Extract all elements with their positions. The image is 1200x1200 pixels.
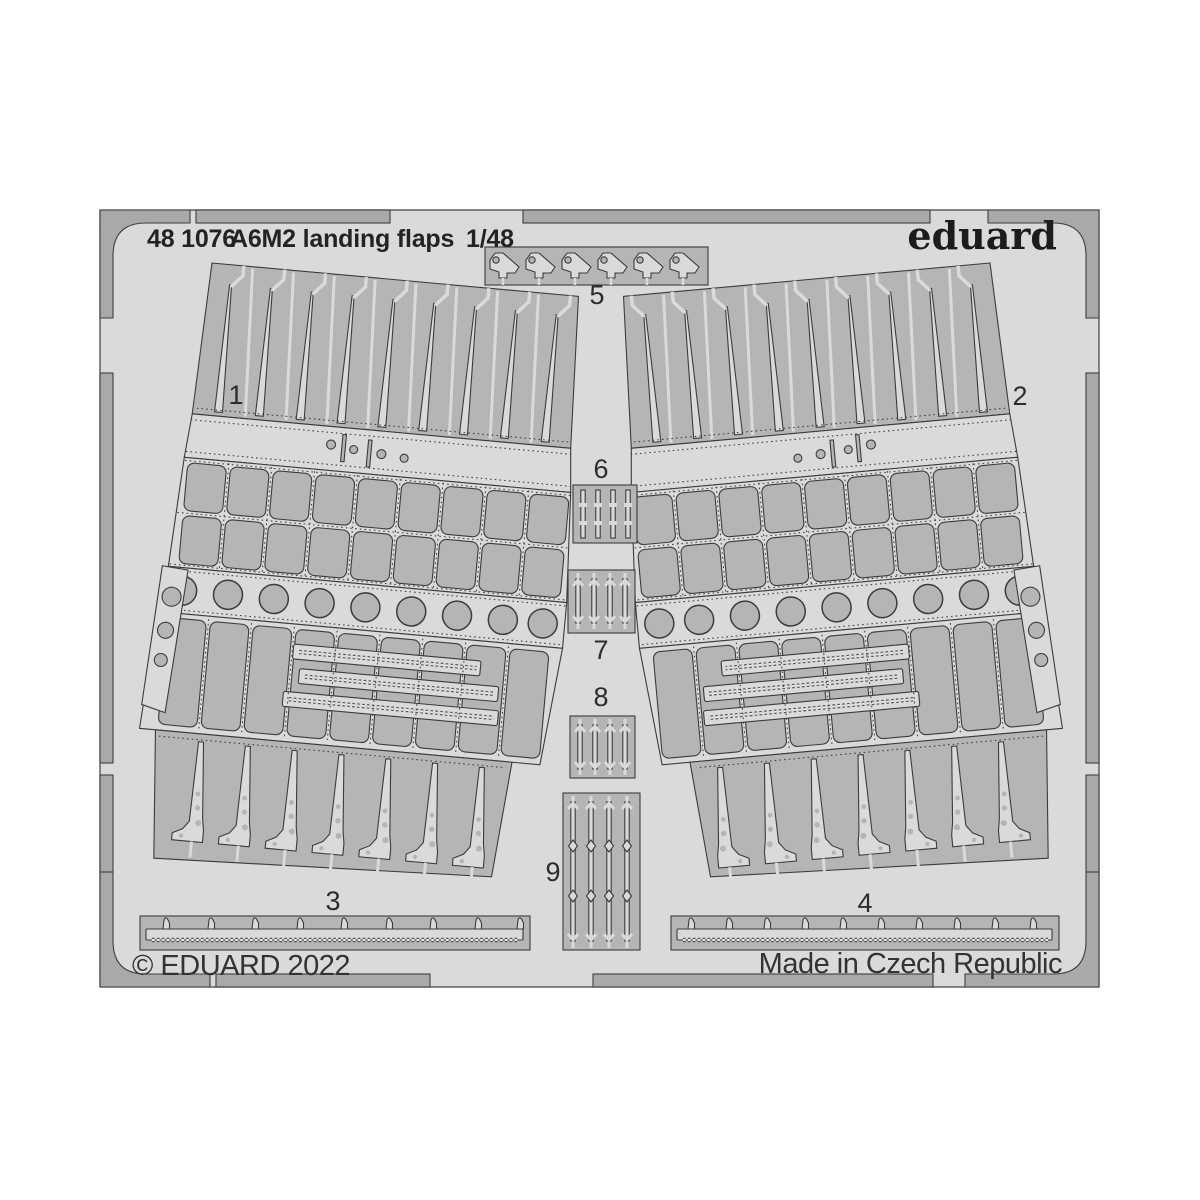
part-7-label: 7 [593,635,608,665]
made-in-text: Made in Czech Republic [759,948,1062,980]
catalog-number: 48 1076 [147,225,236,253]
edge-strip-part-4 [671,916,1059,950]
ladder-fret-part-7 [568,570,635,633]
product-name: A6M2 landing flaps [230,225,454,253]
frame-strip-left [100,775,113,872]
frame-strip-left [100,373,113,763]
frame-strip-right [1086,373,1099,763]
frame-strip-top [196,210,390,223]
edge-strip-part-3 [140,916,530,950]
part-9-label: 9 [545,857,560,887]
eduard-logo: eduard [907,213,1057,258]
frame-strip-right [1086,775,1099,872]
part-6-label: 6 [593,454,608,484]
part-1-label: 1 [228,380,243,410]
copyright-text: © EDUARD 2022 [132,950,350,982]
part-4-label: 4 [857,888,872,918]
photoetch-sheet-page: 48 1076 A6M2 landing flaps 1/48 eduard ©… [0,0,1200,1200]
part-5-label: 5 [589,280,604,310]
part-8-label: 8 [593,682,608,712]
pe-fret-drawing: 48 1076 A6M2 landing flaps 1/48 eduard ©… [0,0,1200,1200]
part-2-label: 2 [1012,381,1027,411]
ladder-fret-part-9 [563,793,640,950]
ladder-fret-part-8 [570,716,635,778]
part-3-label: 3 [325,886,340,916]
scale-label: 1/48 [466,225,514,253]
frame-strip-top [523,210,930,223]
ladder-fret-part-6 [573,485,637,543]
